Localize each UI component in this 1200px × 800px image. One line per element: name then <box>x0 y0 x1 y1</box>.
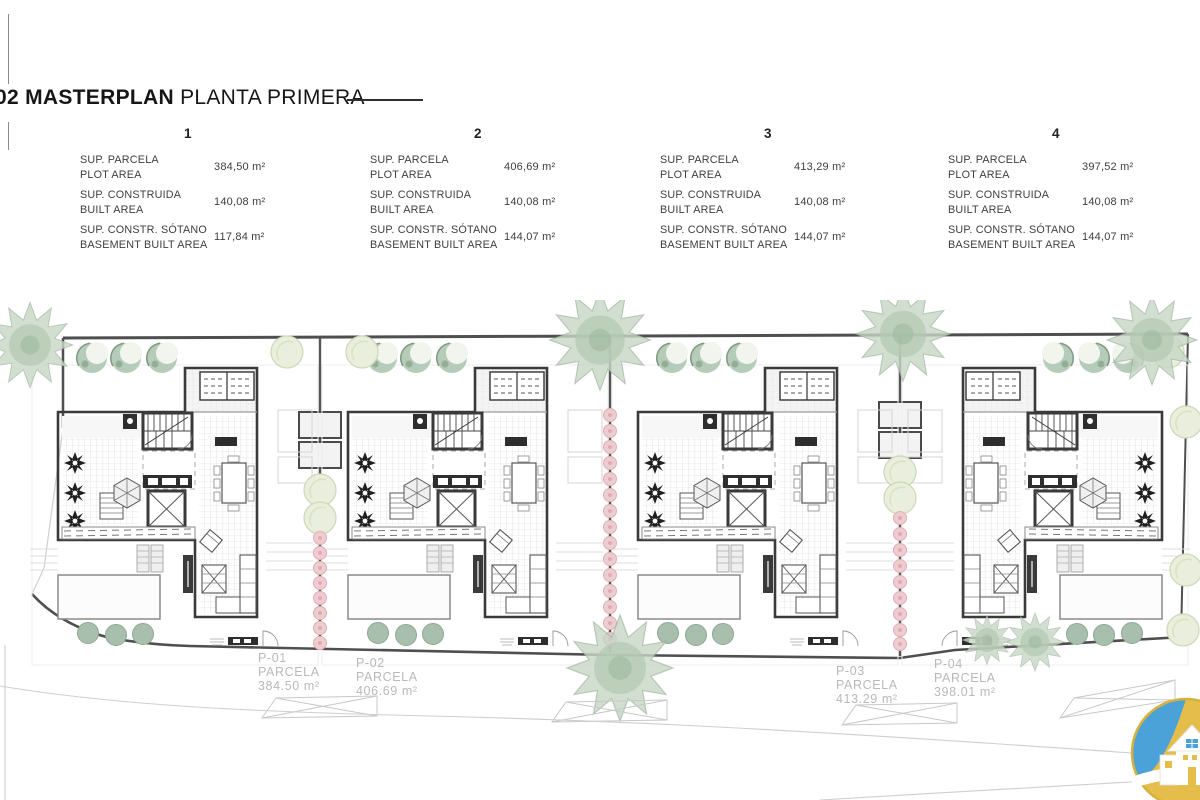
unit-number: 1 <box>80 126 342 148</box>
title-bold: MASTERPLAN <box>25 86 174 109</box>
plot-area-value: 406,69 m² <box>504 153 614 183</box>
ramp <box>262 696 377 718</box>
basement-area-value: 144,07 m² <box>794 223 904 253</box>
plot-area-row: SUP. PARCELA PLOT AREA 413,29 m² <box>660 153 922 183</box>
sheet-margin-line-bottom <box>8 122 9 150</box>
hedge-2-3 <box>604 409 617 646</box>
tree-icon <box>1107 300 1197 385</box>
unit-number: 4 <box>948 126 1200 148</box>
built-area-row: SUP. CONSTRUIDA BUILT AREA 140,08 m² <box>80 188 342 218</box>
parcel-id: P-01 <box>258 651 320 665</box>
row-label-en: BASEMENT BUILT AREA <box>370 239 497 251</box>
tree-icon <box>1170 554 1200 586</box>
basement-area-row: SUP. CONSTR. SÓTANO BASEMENT BUILT AREA … <box>948 223 1200 253</box>
row-label-es: SUP. PARCELA <box>660 154 739 166</box>
parcel-word: PARCELA <box>836 678 898 692</box>
hedge-1-2 <box>304 474 336 650</box>
villa-plan-1 <box>30 342 318 665</box>
plot-area-value: 413,29 m² <box>794 153 904 183</box>
row-label-es: SUP. CONSTR. SÓTANO <box>370 224 497 236</box>
title-rule <box>347 99 423 101</box>
unit-number: 2 <box>370 126 632 148</box>
boundary-right <box>1181 334 1188 637</box>
villa-plan-2 <box>320 342 608 665</box>
title-regular: PLANTA PRIMERA <box>180 86 365 109</box>
built-area-row: SUP. CONSTRUIDA BUILT AREA 140,08 m² <box>660 188 922 218</box>
parcel-label-p03: P-03 PARCELA 413.29 m² <box>836 664 898 706</box>
sheet-margin-line-top <box>8 14 9 84</box>
parcel-area: 398.01 m² <box>934 685 996 699</box>
row-label-es: SUP. PARCELA <box>80 154 159 166</box>
plot-area-value: 384,50 m² <box>214 153 324 183</box>
row-label-en: PLOT AREA <box>660 169 722 181</box>
plot-area-row: SUP. PARCELA PLOT AREA 397,52 m² <box>948 153 1200 183</box>
basement-area-row: SUP. CONSTR. SÓTANO BASEMENT BUILT AREA … <box>370 223 632 253</box>
ramp <box>842 703 957 725</box>
tree-icon <box>550 300 651 390</box>
tree-icon <box>856 300 951 381</box>
built-area-value: 140,08 m² <box>504 188 614 218</box>
row-label-es: SUP. CONSTRUIDA <box>370 189 471 201</box>
unit-column-4: 4 SUP. PARCELA PLOT AREA 397,52 m² SUP. … <box>948 126 1200 253</box>
page-title: 02 MASTERPLAN PLANTA PRIMERA <box>0 86 365 110</box>
bush-icon <box>1006 613 1065 672</box>
row-label-es: SUP. PARCELA <box>948 154 1027 166</box>
parcel-id: P-04 <box>934 657 996 671</box>
unit-number: 3 <box>660 126 922 148</box>
parcel-word: PARCELA <box>356 670 418 684</box>
unit-column-2: 2 SUP. PARCELA PLOT AREA 406,69 m² SUP. … <box>370 126 632 253</box>
ramp <box>552 700 667 722</box>
built-area-row: SUP. CONSTRUIDA BUILT AREA 140,08 m² <box>370 188 632 218</box>
basement-area-value: 117,84 m² <box>214 223 324 253</box>
logo-house-icon <box>1132 699 1200 800</box>
parcel-area: 384.50 m² <box>258 679 320 693</box>
row-label-es: SUP. CONSTR. SÓTANO <box>80 224 207 236</box>
tree-icon <box>346 336 378 368</box>
row-label-en: PLOT AREA <box>370 169 432 181</box>
built-area-row: SUP. CONSTRUIDA BUILT AREA 140,08 m² <box>948 188 1200 218</box>
row-label-en: BUILT AREA <box>370 204 433 216</box>
row-label-en: BASEMENT BUILT AREA <box>948 239 1075 251</box>
unit-column-1: 1 SUP. PARCELA PLOT AREA 384,50 m² SUP. … <box>80 126 342 253</box>
parcel-id: P-02 <box>356 656 418 670</box>
row-label-es: SUP. CONSTRUIDA <box>660 189 761 201</box>
basement-area-row: SUP. CONSTR. SÓTANO BASEMENT BUILT AREA … <box>660 223 922 253</box>
villa-plan-3 <box>610 342 898 665</box>
plot-area-value: 397,52 m² <box>1082 153 1192 183</box>
villa-plan-4 <box>902 342 1190 665</box>
parcel-word: PARCELA <box>934 671 996 685</box>
developer-logo <box>1126 697 1200 800</box>
row-label-en: BASEMENT BUILT AREA <box>660 239 787 251</box>
tree-icon <box>1170 406 1200 438</box>
parcel-id: P-03 <box>836 664 898 678</box>
row-label-en: BASEMENT BUILT AREA <box>80 239 207 251</box>
row-label-es: SUP. CONSTRUIDA <box>80 189 181 201</box>
sheet-number: 02 <box>0 86 19 109</box>
basement-area-value: 144,07 m² <box>1082 223 1192 253</box>
built-area-value: 140,08 m² <box>794 188 904 218</box>
plot-area-row: SUP. PARCELA PLOT AREA 384,50 m² <box>80 153 342 183</box>
basement-area-row: SUP. CONSTR. SÓTANO BASEMENT BUILT AREA … <box>80 223 342 253</box>
built-area-value: 140,08 m² <box>1082 188 1192 218</box>
parcel-area: 406.69 m² <box>356 684 418 698</box>
site-plan-svg <box>0 300 1200 800</box>
row-label-en: BUILT AREA <box>660 204 723 216</box>
parcel-label-p01: P-01 PARCELA 384.50 m² <box>258 651 320 693</box>
plot-area-row: SUP. PARCELA PLOT AREA 406,69 m² <box>370 153 632 183</box>
tree-icon <box>271 336 303 368</box>
parcel-label-p02: P-02 PARCELA 406.69 m² <box>356 656 418 698</box>
parcel-word: PARCELA <box>258 665 320 679</box>
row-label-en: PLOT AREA <box>948 169 1010 181</box>
built-area-value: 140,08 m² <box>214 188 324 218</box>
row-label-es: SUP. CONSTR. SÓTANO <box>660 224 787 236</box>
row-label-es: SUP. PARCELA <box>370 154 449 166</box>
masterplan-sheet: { "header": { "sheet_number": "02", "tit… <box>0 0 1200 800</box>
basement-area-value: 144,07 m² <box>504 223 614 253</box>
row-label-en: PLOT AREA <box>80 169 142 181</box>
row-label-es: SUP. CONSTR. SÓTANO <box>948 224 1075 236</box>
unit-column-3: 3 SUP. PARCELA PLOT AREA 413,29 m² SUP. … <box>660 126 922 253</box>
row-label-es: SUP. CONSTRUIDA <box>948 189 1049 201</box>
row-label-en: BUILT AREA <box>948 204 1011 216</box>
parcel-area: 413.29 m² <box>836 692 898 706</box>
row-label-en: BUILT AREA <box>80 204 143 216</box>
tree-icon <box>1167 614 1199 646</box>
parcel-label-p04: P-04 PARCELA 398.01 m² <box>934 657 996 699</box>
